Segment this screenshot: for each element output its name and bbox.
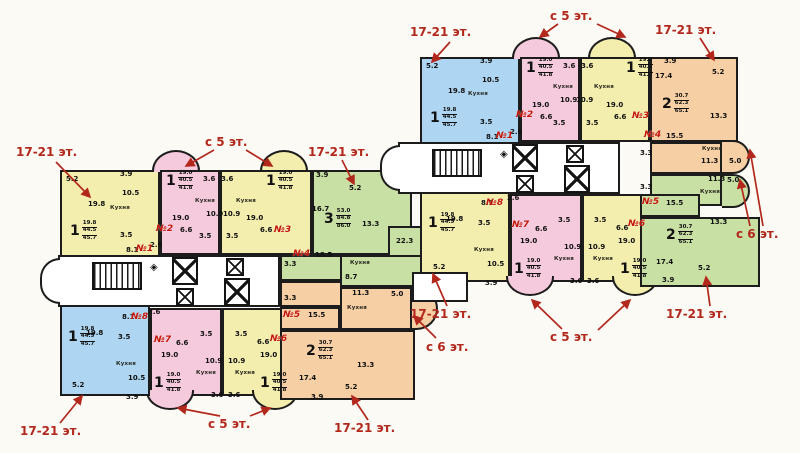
apartment-area-value: 40.5 bbox=[272, 379, 288, 387]
area-label: 10.9 bbox=[588, 244, 605, 251]
area-label: 19.0 bbox=[618, 238, 635, 245]
floor-annotation: 17-21 эт. bbox=[20, 425, 81, 437]
apartment-area-value: 41.8 bbox=[538, 72, 554, 80]
area-label: 13.3 bbox=[710, 219, 727, 226]
apartment-header: 119.040.541.8 bbox=[266, 170, 293, 192]
elevator-shaft-icon bbox=[566, 145, 584, 163]
area-label: 6.6 bbox=[540, 114, 552, 121]
area-label: 5.0 bbox=[727, 177, 739, 184]
elevator-shaft-icon bbox=[226, 258, 244, 276]
apartment-badge: №1 bbox=[496, 132, 513, 141]
area-label: 3.5 bbox=[558, 217, 570, 224]
floor-annotation: 17-21 эт. bbox=[410, 308, 471, 320]
apartment-area-value: 19.0 bbox=[272, 372, 288, 379]
apartment-area-value: 30.7 bbox=[678, 224, 694, 231]
apartment-area-value: 19.0 bbox=[638, 57, 654, 64]
area-label: 5.2 bbox=[698, 265, 710, 272]
apartment-badge: №6 bbox=[628, 220, 645, 229]
area-label: 3.9 bbox=[120, 171, 132, 178]
apartment-header: 119.040.541.8 bbox=[260, 372, 287, 394]
apartment-area-value: 19.0 bbox=[278, 170, 294, 177]
area-label: 15.5 bbox=[666, 200, 683, 207]
apartment-header: 353.084.886.0 bbox=[324, 208, 351, 230]
lobby-diamond-icon: ◈ bbox=[500, 150, 508, 160]
area-label: 10.9 bbox=[206, 211, 223, 218]
kitchen-label: Кухня bbox=[702, 147, 722, 153]
apartment-header: 119.040.541.8 bbox=[526, 57, 553, 79]
area-label: 3.9 bbox=[311, 394, 323, 401]
area-label: 17.4 bbox=[299, 375, 316, 382]
area-label: 17.4 bbox=[656, 259, 673, 266]
area-label: 3.3 bbox=[284, 295, 296, 302]
area-label: 6.6 bbox=[260, 227, 272, 234]
floor-annotation: 17-21 эт. bbox=[410, 26, 471, 38]
elevator-shaft-icon bbox=[224, 278, 250, 306]
elevator-shaft-icon bbox=[516, 175, 534, 193]
room-count-digit: 2 bbox=[666, 228, 676, 242]
area-label: 3.5 bbox=[480, 119, 492, 126]
apartment-area-value: 41.8 bbox=[178, 185, 194, 193]
apartment-badge: №8 bbox=[131, 313, 148, 322]
floor-annotation: 17-21 эт. bbox=[334, 422, 395, 434]
area-label: 15.5 bbox=[666, 133, 683, 140]
apartment-area-value: 19.0 bbox=[632, 258, 648, 265]
floor-annotation: с 6 эт. bbox=[736, 228, 778, 240]
area-label: 13.3 bbox=[357, 362, 374, 369]
apartment-area-value: 19.0 bbox=[178, 170, 194, 177]
area-label: 3.5 bbox=[199, 233, 211, 240]
apartment-area-value: 19.8 bbox=[82, 220, 98, 227]
room-count-digit: 1 bbox=[514, 262, 524, 276]
area-label: 5.2 bbox=[66, 176, 78, 183]
area-label: 19.0 bbox=[606, 102, 623, 109]
area-label: 3.9 bbox=[662, 277, 674, 284]
area-label: 2.6 bbox=[507, 195, 519, 202]
kitchen-label: Кухня bbox=[474, 248, 494, 254]
apartment-area-value: 41.8 bbox=[272, 387, 288, 395]
apartment-area-value: 44.5 bbox=[442, 114, 458, 122]
area-label: 5.2 bbox=[426, 63, 438, 70]
room-count-digit: 1 bbox=[430, 111, 440, 125]
area-label: 3.6 bbox=[581, 63, 593, 70]
kitchen-label: Кухня bbox=[700, 190, 720, 196]
room-count-digit: 1 bbox=[166, 174, 176, 188]
area-label: 10.9 bbox=[205, 358, 222, 365]
area-label: 19.0 bbox=[246, 215, 263, 222]
apartment-area-value: 19.8 bbox=[442, 107, 458, 114]
area-label: 10.9 bbox=[223, 211, 240, 218]
apartment-area-value: 41.8 bbox=[638, 72, 654, 80]
annotation-arrow bbox=[598, 300, 630, 330]
room-count-digit: 1 bbox=[620, 262, 630, 276]
floor-plan-canvas: ◈◈5.23.910.519.83.58.12.63.610.919.06.63… bbox=[0, 0, 800, 453]
staircase-icon bbox=[92, 262, 142, 290]
area-label: 13.3 bbox=[710, 113, 727, 120]
apartment-area-value: 44.5 bbox=[82, 227, 98, 235]
area-label: 5.0 bbox=[729, 158, 741, 165]
area-label: 22.3 bbox=[396, 238, 413, 245]
apartment-header: 119.844.545.7 bbox=[428, 212, 455, 234]
annotation-arrow bbox=[540, 24, 558, 37]
elevator-shaft-icon bbox=[172, 257, 198, 285]
room-block bbox=[40, 258, 60, 304]
area-label: 3.5 bbox=[594, 217, 606, 224]
room-count-digit: 1 bbox=[626, 61, 636, 75]
area-label: 3.5 bbox=[200, 331, 212, 338]
room-count-digit: 1 bbox=[428, 216, 438, 230]
floor-annotation: 17-21 эт. bbox=[16, 146, 77, 158]
area-label: 5.2 bbox=[433, 264, 445, 271]
apartment-area-value: 40.5 bbox=[166, 379, 182, 387]
area-label: 3.5 bbox=[586, 120, 598, 127]
area-label: 19.0 bbox=[520, 238, 537, 245]
apartment-header: 119.040.541.8 bbox=[154, 372, 181, 394]
apartment-area-value: 62.3 bbox=[674, 100, 690, 108]
apartment-area-value: 62.3 bbox=[318, 347, 334, 355]
apartment-badge: №7 bbox=[154, 336, 171, 345]
apartment-header: 230.762.365.1 bbox=[666, 224, 693, 246]
apartment-area-value: 65.1 bbox=[674, 108, 690, 116]
apartment-badge: №5 bbox=[642, 198, 659, 207]
area-label: 5.2 bbox=[712, 69, 724, 76]
floor-annotation: 17-21 эт. bbox=[308, 146, 369, 158]
kitchen-label: Кухня bbox=[554, 257, 574, 263]
room-count-digit: 1 bbox=[154, 376, 164, 390]
area-label: 3.6 bbox=[203, 176, 215, 183]
apartment-area-value: 44.5 bbox=[440, 219, 456, 227]
apartment-area-value: 65.1 bbox=[678, 239, 694, 247]
apartment-header: 119.040.541.8 bbox=[620, 258, 647, 280]
lobby-diamond-icon: ◈ bbox=[150, 263, 158, 273]
apartment-area-value: 19.0 bbox=[526, 258, 542, 265]
room-block bbox=[412, 272, 468, 302]
kitchen-label: Кухня bbox=[350, 261, 370, 267]
kitchen-label: Кухня bbox=[110, 206, 130, 212]
apartment-area-value: 53.0 bbox=[336, 208, 352, 215]
kitchen-label: Кухня bbox=[468, 92, 488, 98]
area-label: 10.9 bbox=[564, 244, 581, 251]
apartment-header: 119.844.545.7 bbox=[68, 326, 95, 348]
staircase-icon bbox=[432, 149, 482, 177]
room-count-digit: 1 bbox=[266, 174, 276, 188]
apartment-header: 119.040.541.8 bbox=[514, 258, 541, 280]
area-label: 3.9 bbox=[126, 394, 138, 401]
area-label: 3.5 bbox=[553, 120, 565, 127]
area-label: 19.0 bbox=[161, 352, 178, 359]
area-label: 6.6 bbox=[257, 339, 269, 346]
apartment-area-value: 19.8 bbox=[80, 326, 96, 333]
area-label: 3.6 bbox=[221, 176, 233, 183]
apartment-area-value: 30.7 bbox=[318, 340, 334, 347]
area-label: 13.3 bbox=[362, 221, 379, 228]
area-label: 8.7 bbox=[345, 274, 357, 281]
area-label: 6.6 bbox=[180, 227, 192, 234]
kitchen-label: Кухня bbox=[593, 257, 613, 263]
area-label: 3.6 bbox=[211, 392, 223, 399]
area-label: 6.6 bbox=[535, 226, 547, 233]
kitchen-label: Кухня bbox=[236, 199, 256, 205]
apartment-header: 230.762.365.1 bbox=[306, 340, 333, 362]
annotation-arrow bbox=[250, 408, 270, 416]
area-label: 3.9 bbox=[480, 58, 492, 65]
room-count-digit: 1 bbox=[260, 376, 270, 390]
apartment-area-value: 40.5 bbox=[638, 64, 654, 72]
room-block bbox=[152, 150, 200, 172]
area-label: 3.6 bbox=[587, 278, 599, 285]
area-label: 10.5 bbox=[487, 261, 504, 268]
area-label: 5.2 bbox=[349, 185, 361, 192]
apartment-area-value: 40.5 bbox=[632, 265, 648, 273]
kitchen-label: Кухня bbox=[347, 306, 367, 312]
area-label: 3.9 bbox=[664, 58, 676, 65]
apartment-area-value: 41.8 bbox=[278, 185, 294, 193]
floor-annotation: с 5 эт. bbox=[208, 418, 250, 430]
apartment-badge: №3 bbox=[274, 226, 291, 235]
room-block bbox=[280, 255, 342, 281]
kitchen-label: Кухня bbox=[553, 85, 573, 91]
apartment-area-value: 45.7 bbox=[82, 235, 98, 243]
area-label: 6.6 bbox=[616, 225, 628, 232]
apartment-area-value: 40.5 bbox=[278, 177, 294, 185]
apartment-area-value: 19.0 bbox=[166, 372, 182, 379]
apartment-area-value: 40.5 bbox=[526, 265, 542, 273]
area-label: 11.3 bbox=[708, 176, 725, 183]
room-count-digit: 1 bbox=[526, 61, 536, 75]
area-label: 10.9 bbox=[560, 97, 577, 104]
kitchen-label: Кухня bbox=[116, 362, 136, 368]
apartment-badge: №2 bbox=[156, 225, 173, 234]
apartment-area-value: 84.8 bbox=[336, 215, 352, 223]
apartment-area-value: 40.5 bbox=[178, 177, 194, 185]
annotation-arrow bbox=[597, 24, 625, 37]
area-label: 3.5 bbox=[120, 232, 132, 239]
apartment-header: 119.844.545.7 bbox=[70, 220, 97, 242]
apartment-badge: №7 bbox=[512, 221, 529, 230]
apartment-badge: №3 bbox=[632, 112, 649, 121]
apartment-header: 230.762.365.1 bbox=[662, 93, 689, 115]
annotation-arrow bbox=[60, 396, 82, 423]
apartment-area-value: 41.8 bbox=[632, 273, 648, 281]
annotation-arrow bbox=[532, 300, 562, 329]
area-label: 10.9 bbox=[228, 358, 245, 365]
floor-annotation: 17-21 эт. bbox=[655, 24, 716, 36]
room-count-digit: 1 bbox=[70, 224, 80, 238]
area-label: 3.5 bbox=[118, 334, 130, 341]
floor-annotation: с 5 эт. bbox=[205, 136, 247, 148]
kitchen-label: Кухня bbox=[235, 371, 255, 377]
apartment-badge: №2 bbox=[516, 111, 533, 120]
area-label: 3.9 bbox=[316, 172, 328, 179]
room-block bbox=[512, 37, 560, 59]
room-count-digit: 1 bbox=[68, 330, 78, 344]
floor-annotation: с 5 эт. bbox=[550, 10, 592, 22]
apartment-area-value: 45.7 bbox=[442, 122, 458, 130]
elevator-shaft-icon bbox=[176, 288, 194, 306]
apartment-badge: №8 bbox=[486, 199, 503, 208]
apartment-area-value: 41.8 bbox=[166, 387, 182, 395]
apartment-area-value: 45.7 bbox=[80, 341, 96, 349]
floor-annotation: с 6 эт. bbox=[426, 341, 468, 353]
area-label: 5.2 bbox=[345, 384, 357, 391]
apartment-header: 119.040.541.8 bbox=[626, 57, 653, 79]
room-count-digit: 3 bbox=[324, 212, 334, 226]
annotation-arrow bbox=[750, 150, 763, 226]
kitchen-label: Кухня bbox=[196, 371, 216, 377]
area-label: 19.0 bbox=[172, 215, 189, 222]
apartment-area-value: 65.1 bbox=[318, 355, 334, 363]
area-label: 3.9 bbox=[485, 280, 497, 287]
area-label: 3.5 bbox=[235, 331, 247, 338]
area-label: 10.5 bbox=[482, 77, 499, 84]
apartment-area-value: 86.0 bbox=[336, 223, 352, 231]
area-label: 3.3 bbox=[640, 184, 652, 191]
area-label: 10.5 bbox=[122, 190, 139, 197]
kitchen-label: Кухня bbox=[594, 85, 614, 91]
apartment-badge: №4 bbox=[293, 250, 310, 259]
floor-annotation: с 5 эт. bbox=[550, 331, 592, 343]
area-label: 3.3 bbox=[640, 150, 652, 157]
apartment-area-value: 45.7 bbox=[440, 227, 456, 235]
area-label: 5.2 bbox=[72, 382, 84, 389]
area-label: 6.6 bbox=[614, 114, 626, 121]
area-label: 15.5 bbox=[308, 312, 325, 319]
apartment-area-value: 62.3 bbox=[678, 231, 694, 239]
area-label: 18.5 bbox=[315, 252, 332, 259]
floor-annotation: 17-21 эт. bbox=[666, 308, 727, 320]
area-label: 3.5 bbox=[226, 233, 238, 240]
room-block bbox=[260, 150, 308, 172]
room-block bbox=[588, 37, 636, 59]
area-label: 3.6 bbox=[228, 392, 240, 399]
apartment-area-value: 41.8 bbox=[526, 273, 542, 281]
apartment-area-value: 19.0 bbox=[538, 57, 554, 64]
area-label: 17.4 bbox=[655, 73, 672, 80]
annotation-arrow bbox=[178, 408, 220, 416]
apartment-header: 119.040.541.8 bbox=[166, 170, 193, 192]
apartment-area-value: 19.8 bbox=[440, 212, 456, 219]
area-label: 19.0 bbox=[260, 352, 277, 359]
area-label: 19.8 bbox=[88, 201, 105, 208]
area-label: 10.5 bbox=[128, 375, 145, 382]
apartment-badge: №4 bbox=[644, 131, 661, 140]
room-count-digit: 2 bbox=[662, 97, 672, 111]
kitchen-label: Кухня bbox=[195, 199, 215, 205]
area-label: 6.6 bbox=[176, 340, 188, 347]
area-label: 11.3 bbox=[352, 290, 369, 297]
area-label: 3.6 bbox=[570, 278, 582, 285]
apartment-badge: №5 bbox=[283, 311, 300, 320]
area-label: 11.3 bbox=[701, 158, 718, 165]
apartment-area-value: 40.5 bbox=[538, 64, 554, 72]
room-count-digit: 2 bbox=[306, 344, 316, 358]
elevator-shaft-icon bbox=[564, 165, 590, 193]
apartment-area-value: 44.5 bbox=[80, 333, 96, 341]
area-label: 10.9 bbox=[576, 97, 593, 104]
apartment-area-value: 30.7 bbox=[674, 93, 690, 100]
area-label: 19.8 bbox=[448, 88, 465, 95]
elevator-shaft-icon bbox=[512, 144, 538, 172]
area-label: 5.0 bbox=[391, 291, 403, 298]
apartment-badge: №1 bbox=[136, 245, 153, 254]
apartment-header: 119.844.545.7 bbox=[430, 107, 457, 129]
area-label: 19.0 bbox=[532, 102, 549, 109]
area-label: 3.3 bbox=[284, 261, 296, 268]
area-label: 2.6 bbox=[148, 309, 160, 316]
apartment-badge: №6 bbox=[270, 335, 287, 344]
area-label: 3.5 bbox=[478, 220, 490, 227]
area-label: 3.6 bbox=[563, 63, 575, 70]
